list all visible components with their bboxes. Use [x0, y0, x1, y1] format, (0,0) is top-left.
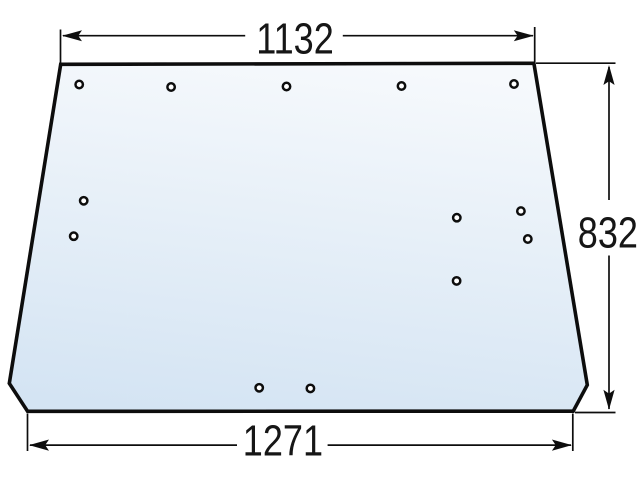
- svg-text:832: 832: [578, 208, 638, 257]
- svg-text:1271: 1271: [243, 416, 323, 465]
- svg-text:1132: 1132: [256, 14, 334, 63]
